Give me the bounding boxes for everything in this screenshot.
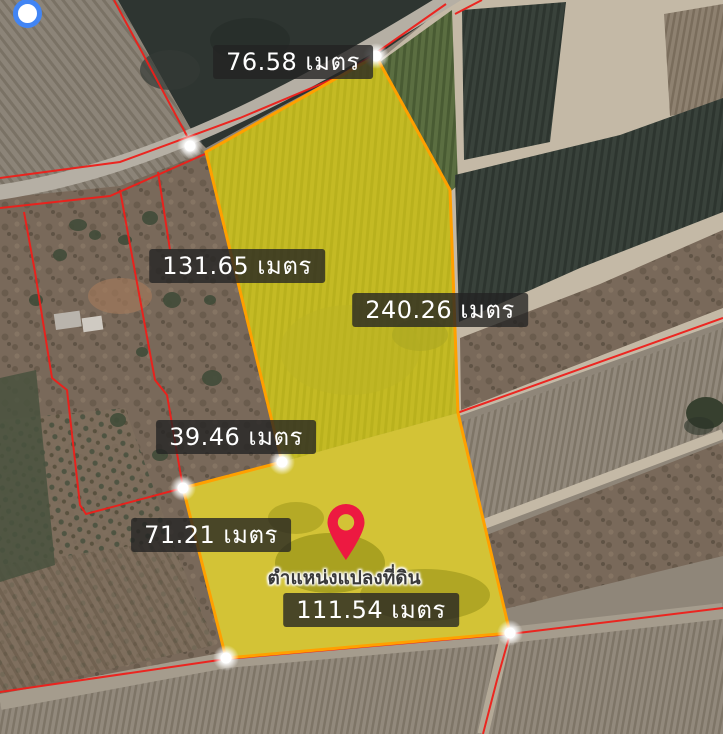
measurement-label-left-upper: 131.65 เมตร <box>149 249 325 283</box>
measurement-label-middle: 39.46 เมตร <box>156 420 316 454</box>
satellite-map[interactable]: 76.58 เมตร 131.65 เมตร 240.26 เมตร 39.46… <box>0 0 723 734</box>
vertex-marker[interactable] <box>497 620 523 646</box>
field-orchard-ne1 <box>462 2 566 160</box>
measurement-label-top: 76.58 เมตร <box>213 45 373 79</box>
field-rows-ne <box>664 4 723 116</box>
measurement-label-right: 240.26 เมตร <box>352 293 528 327</box>
measurement-label-bottom: 111.54 เมตร <box>283 593 459 627</box>
vertex-marker[interactable] <box>170 475 196 501</box>
map-pin-icon[interactable] <box>324 503 368 561</box>
gps-location-icon <box>13 0 42 28</box>
vertex-marker[interactable] <box>177 133 203 159</box>
pin-caption: ตำแหน่งแปลงที่ดิน <box>267 563 420 593</box>
vertex-marker[interactable] <box>213 645 239 671</box>
measurement-label-left-lower: 71.21 เมตร <box>131 518 291 552</box>
